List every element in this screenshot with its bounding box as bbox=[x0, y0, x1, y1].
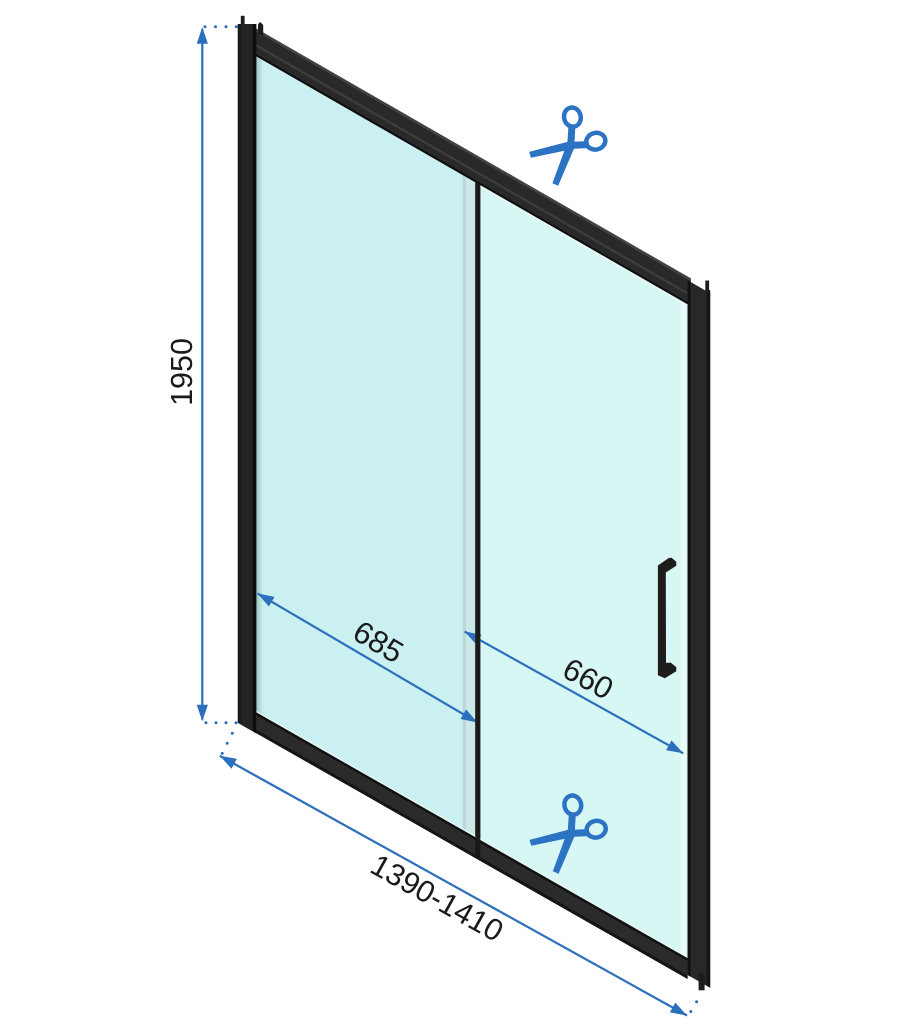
svg-text:1950: 1950 bbox=[165, 338, 199, 406]
